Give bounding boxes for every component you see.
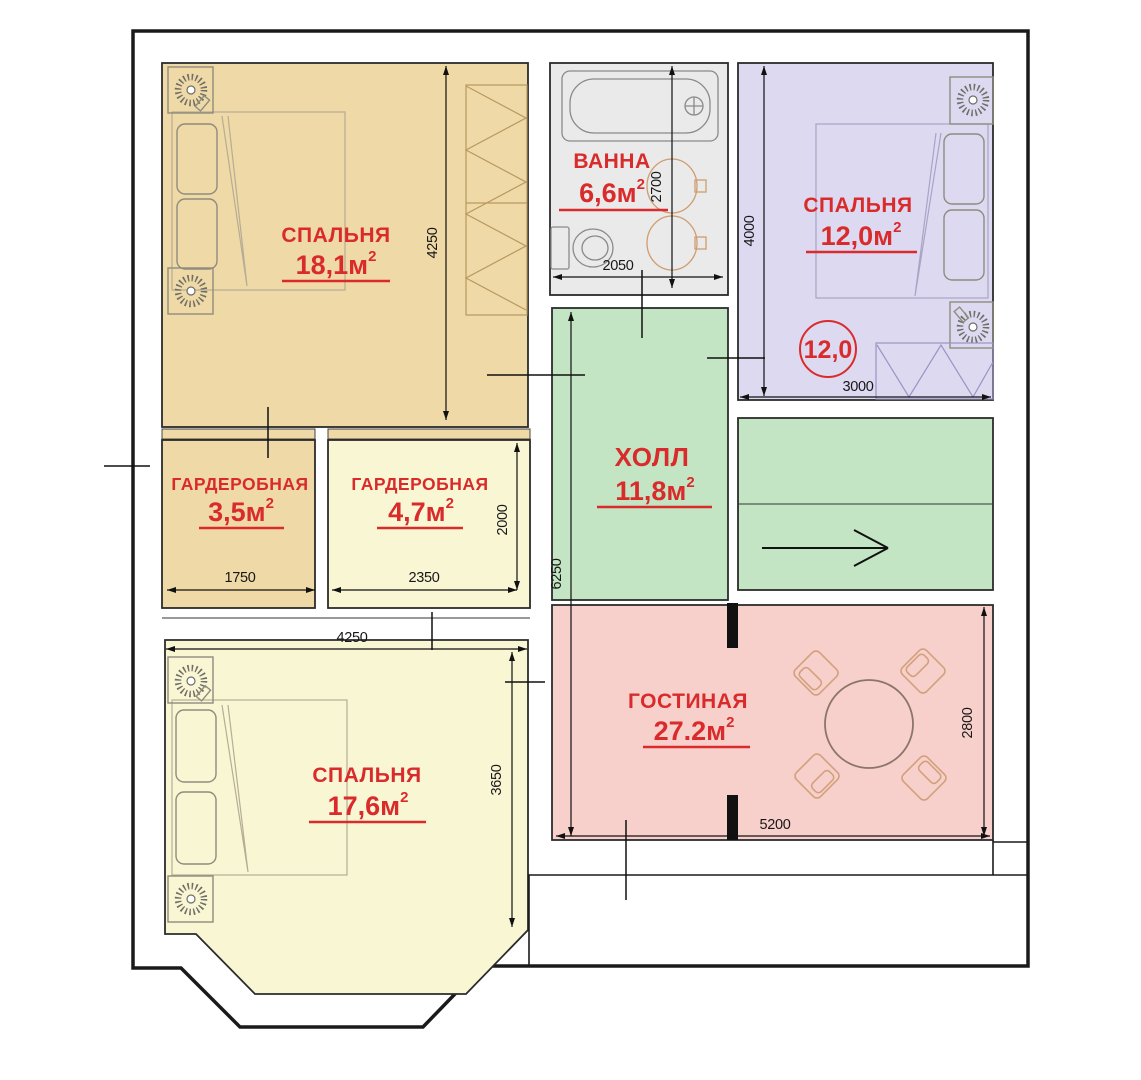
svg-text:3,5м2: 3,5м2 xyxy=(208,495,274,527)
svg-text:4250: 4250 xyxy=(336,630,367,646)
svg-text:4000: 4000 xyxy=(742,215,758,246)
svg-text:2050: 2050 xyxy=(602,258,633,274)
wall-band-2 xyxy=(328,429,530,439)
svg-text:ВАННА: ВАННА xyxy=(573,150,650,173)
svg-text:3000: 3000 xyxy=(842,379,873,395)
svg-text:СПАЛЬНЯ: СПАЛЬНЯ xyxy=(281,224,390,247)
svg-text:СПАЛЬНЯ: СПАЛЬНЯ xyxy=(312,764,421,787)
svg-text:ГАРДЕРОБНАЯ: ГАРДЕРОБНАЯ xyxy=(351,474,488,494)
svg-text:17,6м2: 17,6м2 xyxy=(328,789,409,821)
svg-text:ГАРДЕРОБНАЯ: ГАРДЕРОБНАЯ xyxy=(171,474,308,494)
svg-text:11,8м2: 11,8м2 xyxy=(615,474,694,506)
svg-text:2800: 2800 xyxy=(960,707,976,738)
svg-text:27.2м2: 27.2м2 xyxy=(654,714,735,746)
svg-text:12,0: 12,0 xyxy=(804,336,853,364)
svg-text:ХОЛЛ: ХОЛЛ xyxy=(615,442,690,472)
room-living xyxy=(552,605,993,840)
floor-plan: 4250 2050 2700 4000 3000 1750 2350 2000 … xyxy=(0,0,1141,1080)
svg-text:6,6м2: 6,6м2 xyxy=(579,176,645,208)
svg-text:2000: 2000 xyxy=(495,504,511,535)
svg-text:18,1м2: 18,1м2 xyxy=(296,248,377,280)
svg-text:3650: 3650 xyxy=(489,764,505,795)
svg-text:СПАЛЬНЯ: СПАЛЬНЯ xyxy=(803,194,912,217)
svg-text:2350: 2350 xyxy=(408,570,439,586)
svg-text:4250: 4250 xyxy=(425,227,441,258)
wall-band-1 xyxy=(162,429,315,439)
svg-text:2700: 2700 xyxy=(649,171,665,202)
wall-stub-bottom xyxy=(727,795,738,840)
svg-text:ГОСТИНАЯ: ГОСТИНАЯ xyxy=(628,690,748,713)
svg-text:1750: 1750 xyxy=(224,570,255,586)
wall-stub-top xyxy=(727,603,738,648)
floor-plan-page: 4250 2050 2700 4000 3000 1750 2350 2000 … xyxy=(0,0,1141,1080)
svg-text:5200: 5200 xyxy=(759,817,790,833)
svg-text:12,0м2: 12,0м2 xyxy=(821,219,902,251)
svg-text:4,7м2: 4,7м2 xyxy=(388,495,454,527)
svg-text:6250: 6250 xyxy=(549,558,565,589)
